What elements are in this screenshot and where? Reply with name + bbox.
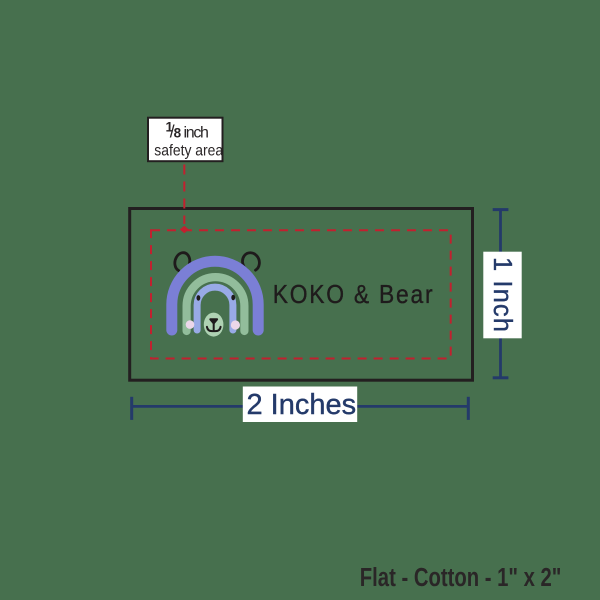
svg-text:KOKO & Bear: KOKO & Bear	[273, 281, 435, 310]
svg-text:safety area: safety area	[154, 142, 223, 160]
svg-text:2 Inches: 2 Inches	[246, 389, 356, 421]
svg-text:1 Inch: 1 Inch	[488, 257, 516, 333]
svg-text:Flat - Cotton - 1" x 2": Flat - Cotton - 1" x 2"	[360, 563, 562, 592]
